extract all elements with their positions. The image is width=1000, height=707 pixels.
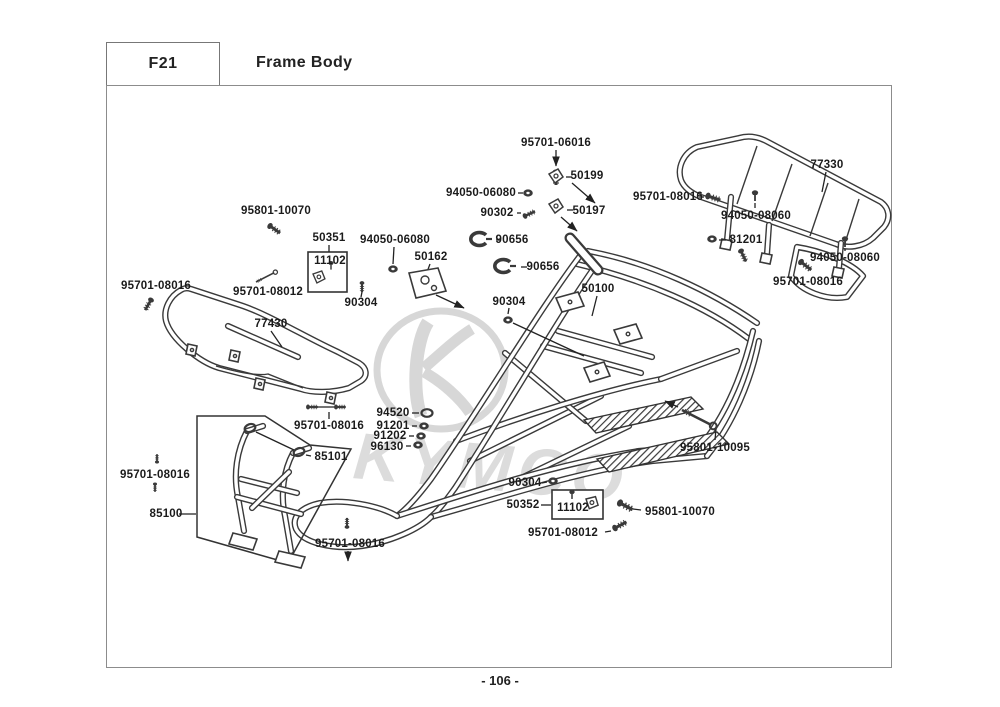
screw-icon: [522, 209, 536, 220]
rear-carrier-drawing: [680, 137, 888, 298]
key-box-50351: [308, 252, 347, 292]
washer-icon: [413, 441, 423, 448]
bolt-icon: [266, 222, 282, 236]
pin-icon: [752, 190, 758, 201]
washer-icon: [388, 265, 398, 272]
bolt-icon: [345, 518, 350, 529]
bracket-icon: [549, 169, 563, 183]
front-carrier-drawing: [165, 288, 365, 404]
washer-icon: [419, 422, 429, 429]
bracket-50162: [409, 268, 446, 298]
frame-body-diagram: KYMCO: [0, 0, 1000, 707]
bolt-icon: [334, 404, 346, 409]
page-number: - 106 -: [0, 673, 1000, 688]
bolt-icon: [153, 482, 157, 491]
washer-icon: [416, 432, 426, 439]
bolt-head-icon: [707, 235, 717, 242]
footboard-left: [584, 397, 703, 433]
bracket-icon: [549, 199, 563, 213]
bolt-icon: [360, 281, 365, 292]
long-bolt-icon: [255, 269, 278, 284]
washer-icon: [503, 316, 513, 323]
washer-icon: [523, 189, 533, 196]
bolt-icon: [142, 296, 154, 311]
washer-icon: [548, 477, 558, 484]
bolt-icon: [611, 519, 628, 532]
clamp-icon: [471, 233, 492, 246]
clamp-icon: [495, 260, 516, 273]
bolt-icon: [155, 454, 159, 463]
key-box-50352: [552, 490, 603, 519]
catalog-page: F21 Frame Body: [0, 0, 1000, 707]
bolt-icon: [797, 258, 813, 273]
bolt-icon: [306, 404, 318, 409]
bolt-icon: [737, 248, 748, 263]
